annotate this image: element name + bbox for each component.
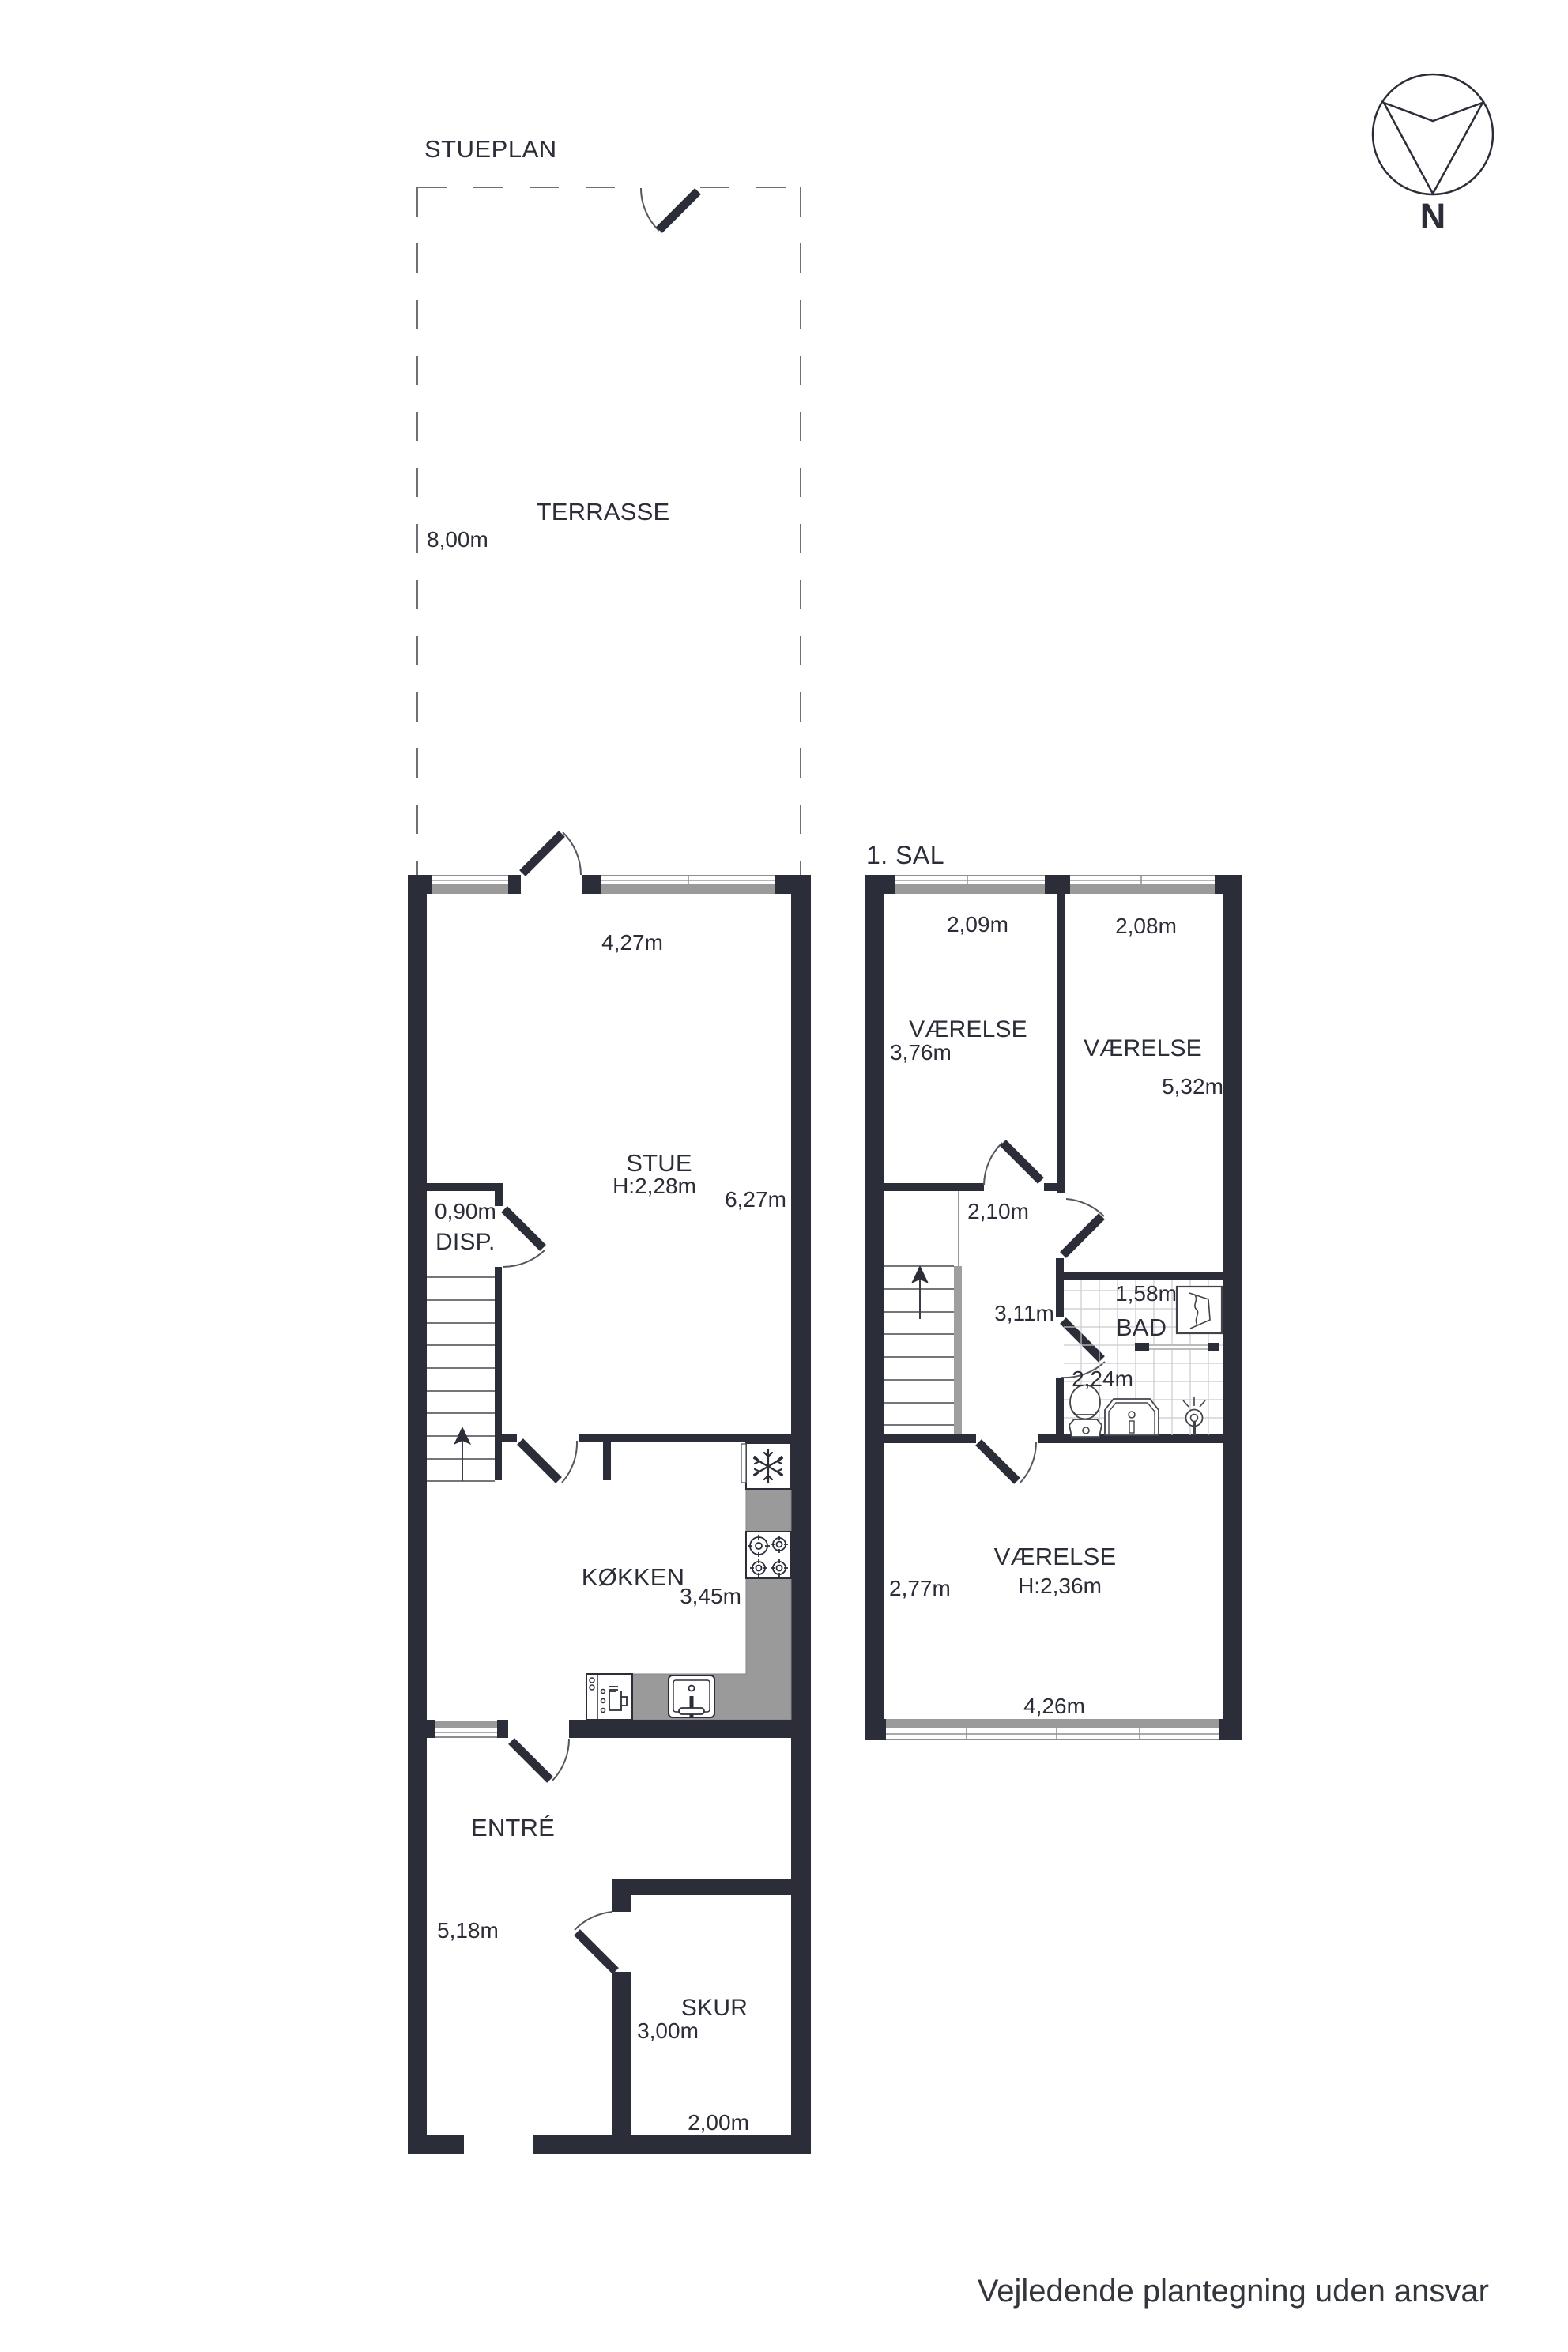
svg-text:4,27m: 4,27m: [601, 930, 663, 955]
svg-text:2,10m: 2,10m: [967, 1199, 1029, 1223]
svg-text:KØKKEN: KØKKEN: [582, 1563, 684, 1591]
svg-text:ENTRÉ: ENTRÉ: [471, 1814, 555, 1841]
svg-text:2,24m: 2,24m: [1072, 1366, 1133, 1391]
svg-text:H:2,28m: H:2,28m: [612, 1174, 696, 1198]
svg-text:1. SAL: 1. SAL: [866, 841, 944, 869]
svg-text:TERRASSE: TERRASSE: [537, 498, 670, 526]
svg-text:8,00m: 8,00m: [427, 527, 488, 552]
svg-text:5,32m: 5,32m: [1162, 1074, 1223, 1099]
svg-text:3,76m: 3,76m: [890, 1040, 952, 1065]
svg-text:BAD: BAD: [1116, 1314, 1167, 1341]
svg-text:0,90m: 0,90m: [435, 1199, 496, 1223]
svg-text:N: N: [1420, 196, 1446, 236]
svg-text:H:2,36m: H:2,36m: [1018, 1574, 1102, 1598]
svg-text:2,00m: 2,00m: [688, 2110, 749, 2135]
svg-text:4,26m: 4,26m: [1023, 1694, 1085, 1718]
svg-text:VÆRELSE: VÆRELSE: [1084, 1035, 1202, 1061]
svg-text:VÆRELSE: VÆRELSE: [994, 1543, 1117, 1570]
svg-text:3,11m: 3,11m: [994, 1301, 1054, 1325]
svg-text:2,77m: 2,77m: [889, 1576, 951, 1600]
svg-text:2,09m: 2,09m: [947, 912, 1008, 937]
svg-text:Vejledende plantegning uden an: Vejledende plantegning uden ansvar: [978, 2274, 1489, 2309]
svg-text:3,00m: 3,00m: [637, 2018, 699, 2043]
svg-text:1,58m: 1,58m: [1115, 1281, 1177, 1306]
svg-text:VÆRELSE: VÆRELSE: [909, 1016, 1027, 1042]
svg-text:SKUR: SKUR: [681, 1995, 748, 2021]
svg-text:STUEPLAN: STUEPLAN: [424, 135, 557, 163]
svg-text:5,18m: 5,18m: [437, 1918, 499, 1943]
svg-text:DISP.: DISP.: [435, 1229, 496, 1255]
svg-text:2,08m: 2,08m: [1115, 914, 1177, 938]
svg-text:STUE: STUE: [626, 1149, 692, 1177]
svg-text:6,27m: 6,27m: [725, 1187, 786, 1212]
svg-text:3,45m: 3,45m: [680, 1584, 741, 1608]
